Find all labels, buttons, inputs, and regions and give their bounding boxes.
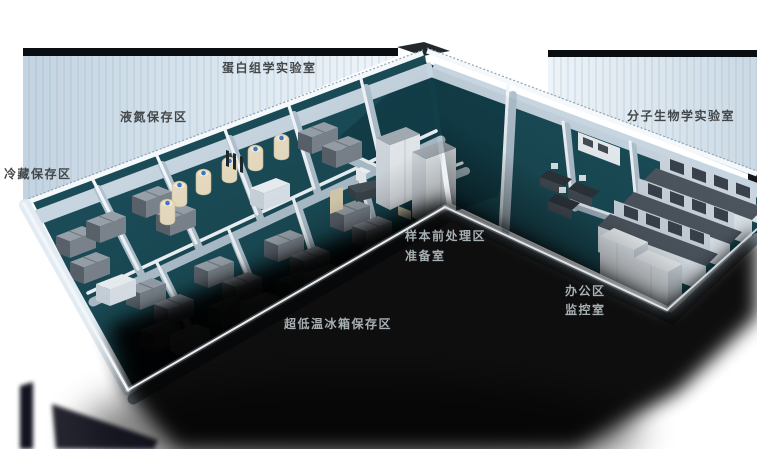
lab-floorplan-figure: 蛋白组学实验室 液氮保存区 冷藏保存区 分子生物学实验室 样本前处理区 准备室 … <box>0 0 757 449</box>
facility-3d-render <box>0 0 757 449</box>
label-molecular-biology-lab: 分子生物学实验室 <box>627 110 735 123</box>
label-sample-pretreatment: 样本前处理区 <box>405 230 486 243</box>
label-monitoring-room: 监控室 <box>565 304 606 317</box>
label-preparation-room: 准备室 <box>405 250 446 263</box>
label-liquid-nitrogen-area: 液氮保存区 <box>120 111 188 124</box>
roof-edge-left <box>23 48 398 56</box>
label-proteomics-lab: 蛋白组学实验室 <box>222 62 317 75</box>
label-cold-storage-area: 冷藏保存区 <box>4 168 72 181</box>
label-ult-freezer-area: 超低温冰箱保存区 <box>284 318 392 331</box>
label-office-area: 办公区 <box>565 285 606 298</box>
roof-edge-right <box>548 50 757 57</box>
